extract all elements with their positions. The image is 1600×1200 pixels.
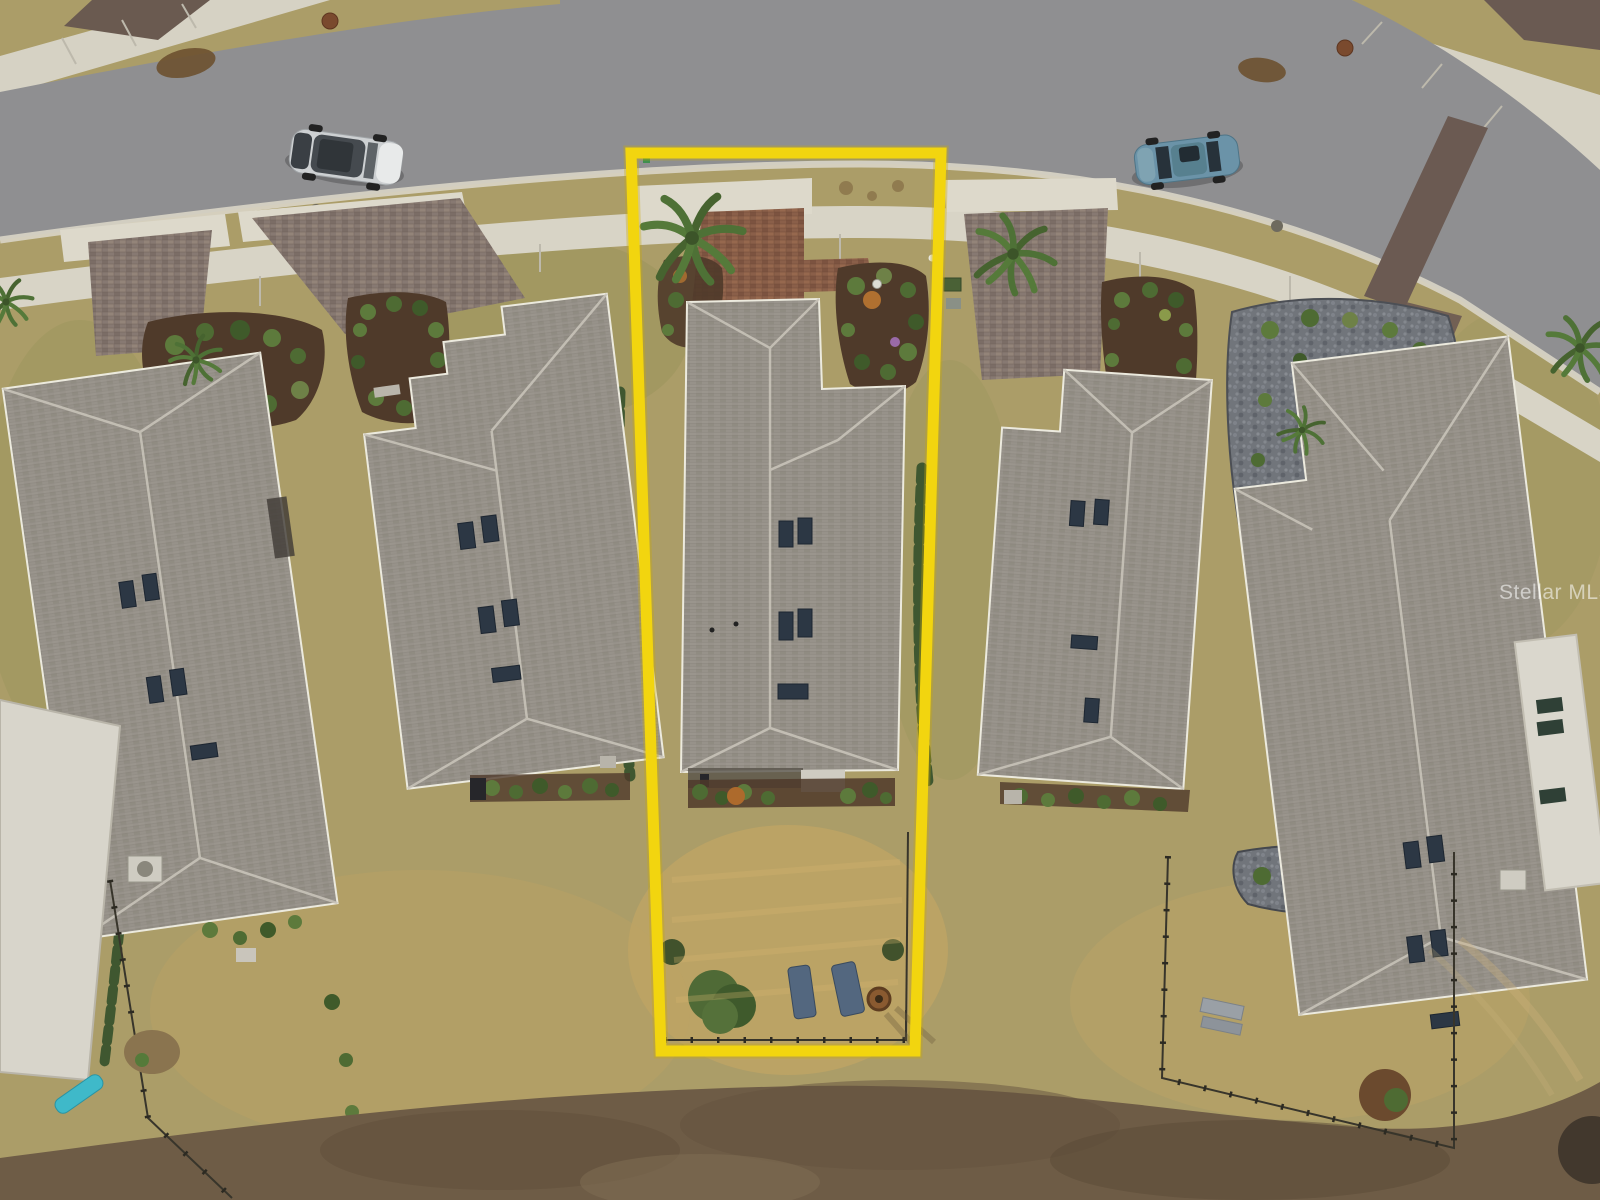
sprig <box>135 1053 149 1067</box>
ac-fan <box>137 861 153 877</box>
sedan-sunroof <box>1178 145 1200 162</box>
watermark-text: Stellar MLS <box>1499 582 1600 603</box>
orange-shrub <box>863 291 881 309</box>
driveway-apron <box>944 178 1118 212</box>
manhole-cover <box>1337 40 1353 56</box>
ac-unit <box>600 756 616 768</box>
utility-box <box>946 298 961 309</box>
ac-unit <box>236 948 256 962</box>
birdbath <box>873 280 882 289</box>
small-tree <box>1384 1088 1408 1112</box>
fire-pit-center <box>875 995 883 1003</box>
grill <box>470 778 486 800</box>
aerial-photo-canvas <box>0 0 1600 1200</box>
purple-flower <box>890 337 900 347</box>
bare-dirt-spot <box>892 180 904 192</box>
manhole-cover <box>322 13 338 29</box>
utility-box <box>944 278 961 291</box>
ac-unit-house5 <box>1500 870 1526 890</box>
bare-dirt-spot <box>867 191 877 201</box>
manhole-cover <box>1271 220 1283 232</box>
ac-unit <box>1004 790 1022 804</box>
house-right <box>978 366 1212 789</box>
aerial-photo: Stellar MLS <box>0 0 1600 1200</box>
orange-shrub <box>727 787 745 805</box>
yellow-green-shrub <box>1159 309 1171 321</box>
bare-dirt-spot <box>839 181 853 195</box>
suv-sunroof <box>316 138 354 172</box>
dirt-patch <box>124 1030 180 1074</box>
roof <box>978 366 1212 789</box>
